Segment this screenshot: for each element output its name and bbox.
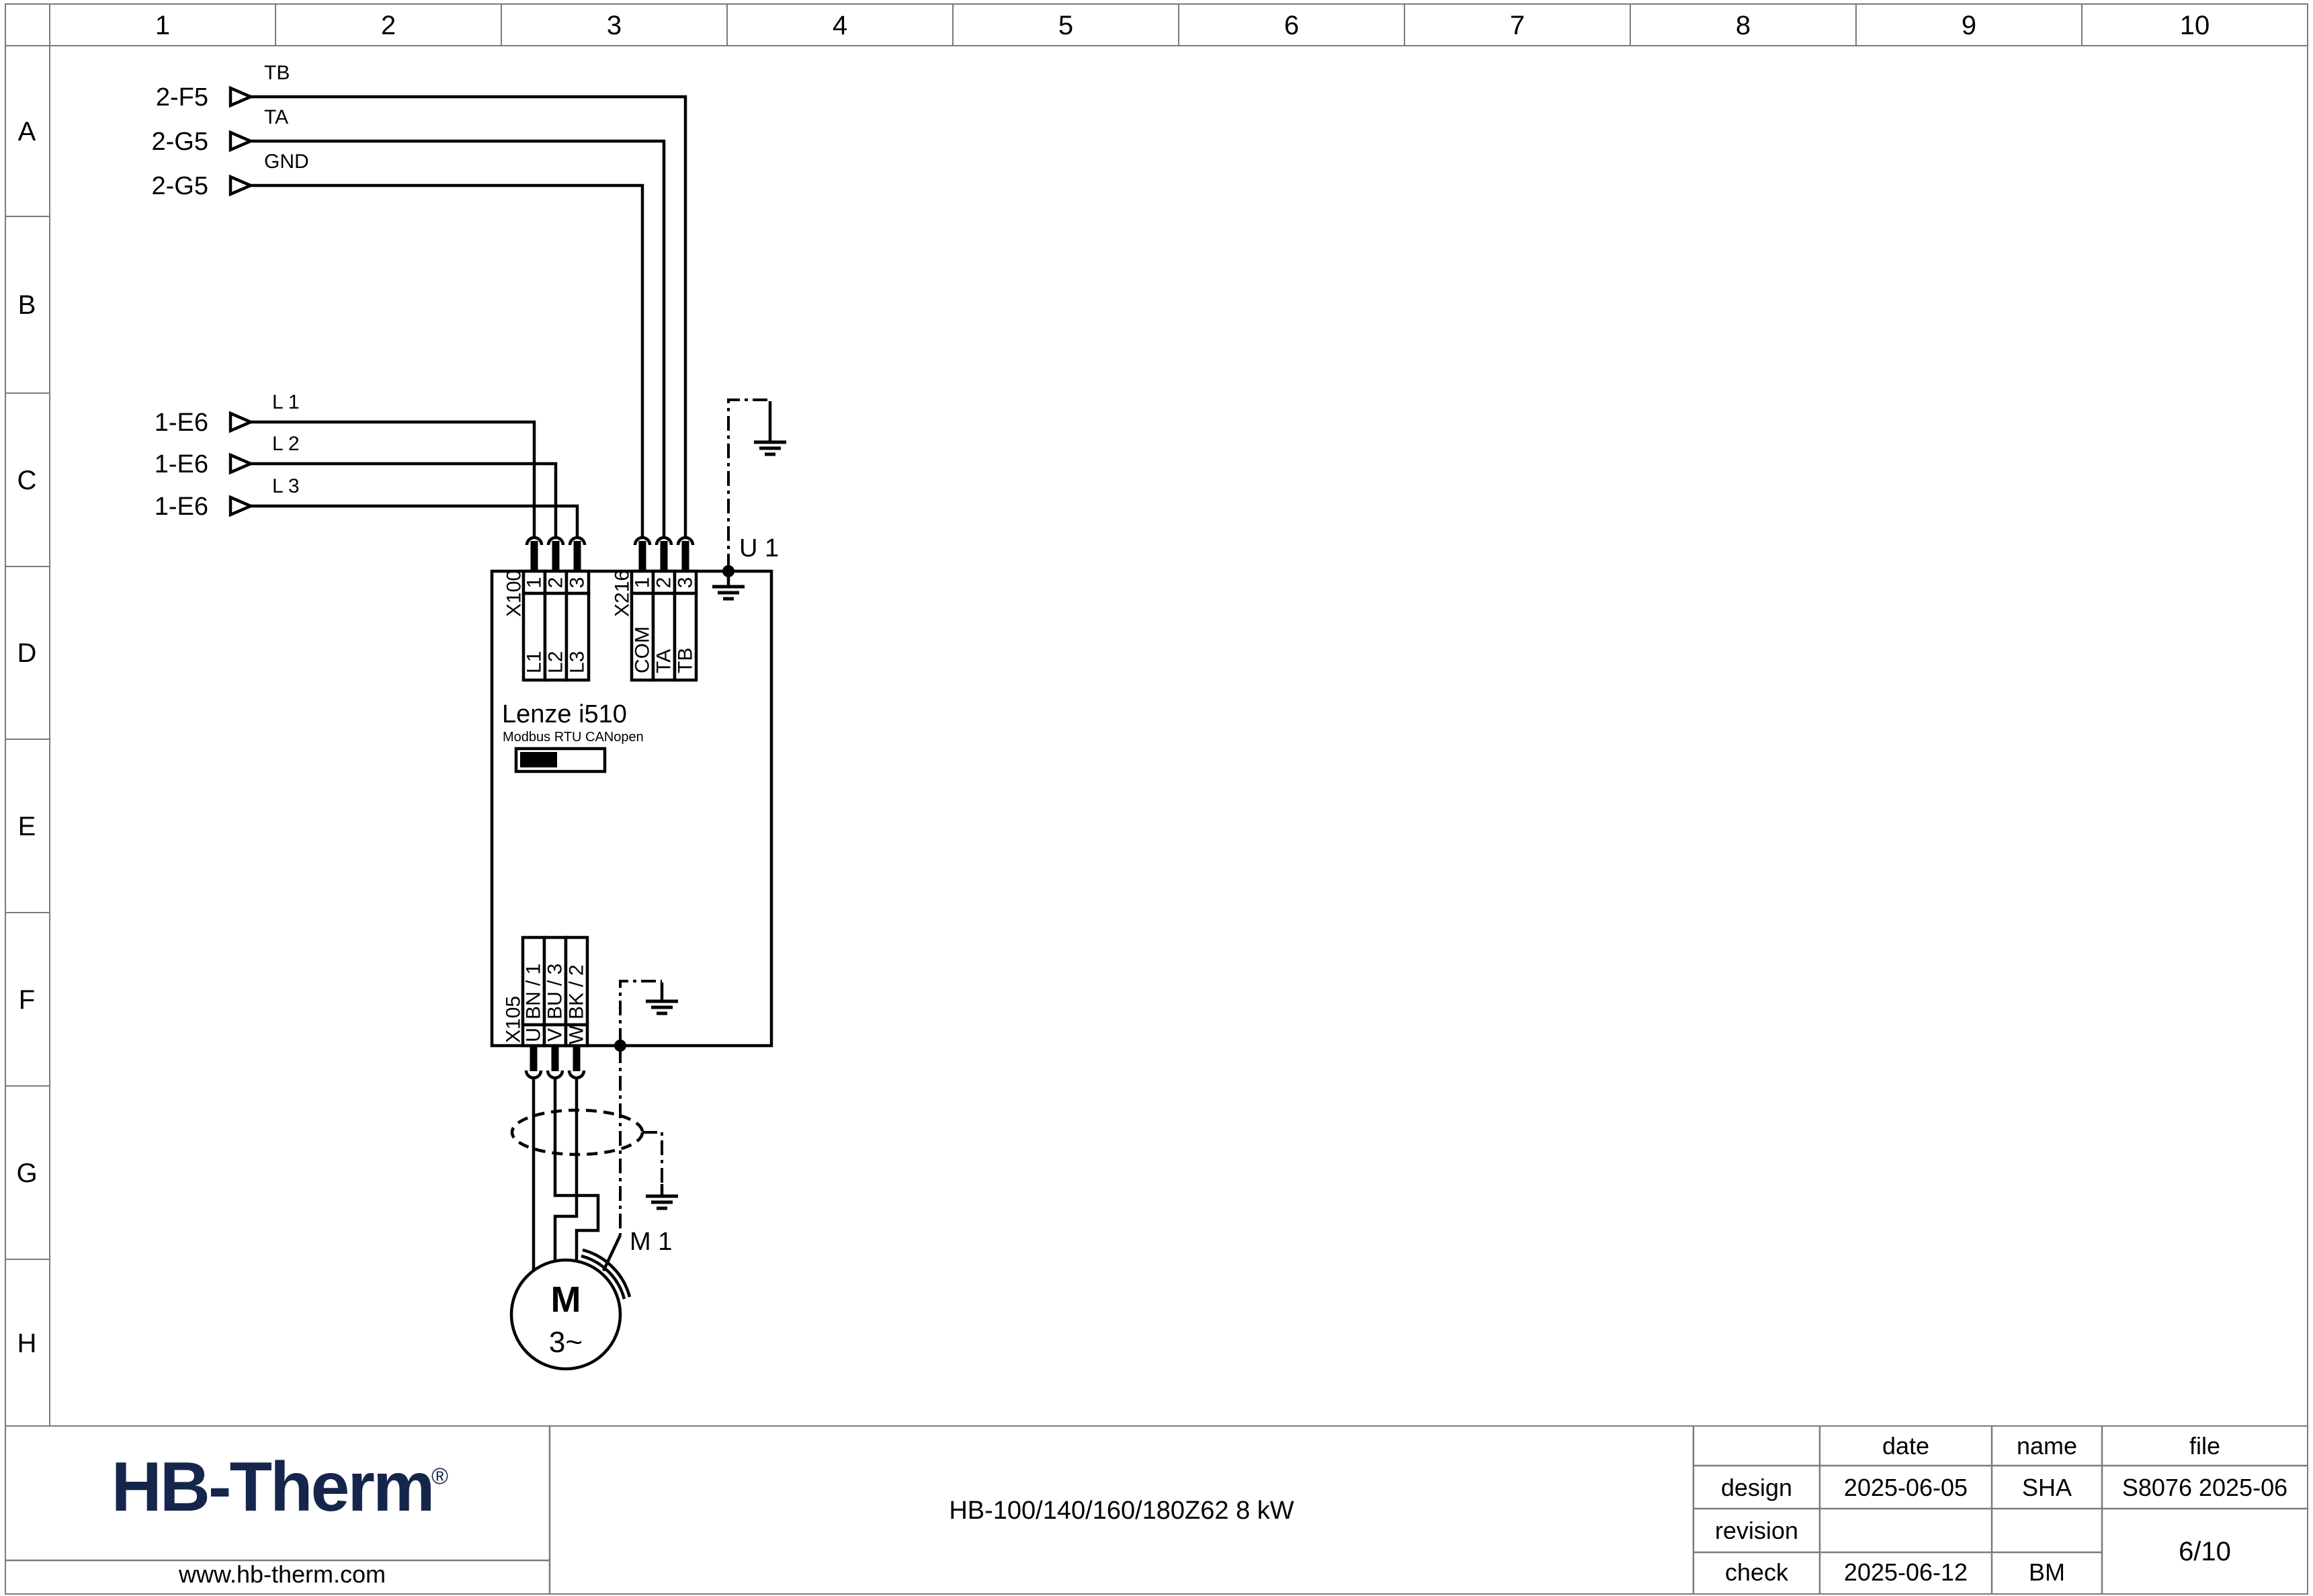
signal-references: 2-F5 TB 2-G5 TA 2-G5 GND 1-E6 L 1 1-E6 L… <box>152 62 685 538</box>
wire-ta <box>251 141 664 538</box>
column-label: 5 <box>1058 11 1073 40</box>
wire-label: L 1 <box>272 391 300 413</box>
terminal-label: L1 <box>523 651 546 673</box>
wire-label: L 2 <box>272 433 300 455</box>
drive-designator: U 1 <box>739 534 779 562</box>
row-label-check: check <box>1725 1558 1789 1586</box>
signal-source-ref: 1-E6 <box>155 493 208 521</box>
wire-l3 <box>251 506 577 538</box>
dip-switch-icon <box>516 749 605 771</box>
terminal-label: L2 <box>545 651 567 673</box>
column-label: 2 <box>381 11 396 40</box>
check-name: BM <box>2029 1558 2065 1586</box>
column-label: 9 <box>1962 11 1976 40</box>
column-label: 6 <box>1284 11 1299 40</box>
page-border <box>5 4 2308 1594</box>
logo-text: HB-Therm <box>112 1448 433 1526</box>
terminal-label: TA <box>653 649 675 673</box>
wire-label: TB <box>264 62 290 84</box>
signal-source-ref: 2-G5 <box>152 128 208 156</box>
signal-source-ref: 1-E6 <box>155 450 208 478</box>
column-header-date: date <box>1882 1432 1929 1460</box>
registered-trademark-icon: ® <box>431 1464 448 1489</box>
drive-device: X100 1 2 3 L1 L2 L3 X216 1 2 3 COM TA TB… <box>492 400 786 1046</box>
terminal-strip-name: X100 <box>503 570 525 617</box>
output-terminal-pins <box>526 1046 584 1078</box>
terminal-pin-number: 2 <box>545 577 567 589</box>
terminal-pin-number: 1 <box>632 577 654 589</box>
left-ruler-ticks <box>5 216 50 1259</box>
signal-source-ref: 2-F5 <box>156 83 208 112</box>
column-label: 4 <box>833 11 847 40</box>
terminal-pin-number: V <box>544 1028 566 1042</box>
column-header-file: file <box>2189 1432 2220 1460</box>
terminal-pin-icon <box>657 538 671 571</box>
page-frame: 1 2 3 4 5 6 7 8 9 10 A B C D E F G H <box>5 4 2308 1594</box>
motor-wire-w <box>555 1078 577 1262</box>
motor-symbol-letter: M <box>551 1279 581 1320</box>
earth-ground-icon <box>646 1196 678 1208</box>
design-file: S8076 2025-06 <box>2122 1474 2287 1501</box>
terminal-strip-name: X216 <box>612 570 634 617</box>
page-number: 6/10 <box>2179 1537 2231 1566</box>
reference-arrow-icon <box>230 497 251 515</box>
terminal-pin-icon <box>526 1046 541 1078</box>
terminal-pin-number: 3 <box>675 577 697 589</box>
reference-arrow-icon <box>230 455 251 472</box>
terminal-pin-number: 1 <box>523 577 546 589</box>
schematic-canvas: 1 2 3 4 5 6 7 8 9 10 A B C D E F G H 2-F… <box>0 0 2313 1596</box>
terminal-pin-number: W <box>566 1025 588 1044</box>
column-label: 8 <box>1736 11 1751 40</box>
terminal-strip-name: X105 <box>503 996 525 1043</box>
drive-fieldbus: Modbus RTU CANopen <box>503 730 644 745</box>
motor-designator: M 1 <box>630 1228 672 1256</box>
terminal-pin-icon <box>569 1046 584 1078</box>
terminal-label: TB <box>675 648 697 673</box>
reference-arrow-icon <box>230 413 251 431</box>
terminal-label: COM <box>632 626 654 673</box>
terminal-pin-icon <box>548 538 563 571</box>
reference-arrow-icon <box>230 132 251 150</box>
wire-label: TA <box>264 106 288 128</box>
input-terminal-pins <box>527 538 693 571</box>
column-label: 7 <box>1510 11 1525 40</box>
drawing-title: HB-100/140/160/180Z62 8 kW <box>949 1497 1294 1525</box>
column-header-name: name <box>2017 1432 2077 1460</box>
terminal-pin-number: 2 <box>653 577 675 589</box>
drive-model: Lenze i510 <box>502 700 627 728</box>
motor-phase-label: 3~ <box>549 1326 583 1359</box>
top-ruler-labels: 1 2 3 4 5 6 7 8 9 10 <box>155 11 2210 40</box>
row-label-design: design <box>1721 1474 1792 1501</box>
row-label: F <box>19 985 35 1015</box>
row-label: B <box>18 290 36 320</box>
title-block: HB-Therm ® www.hb-therm.com HB-100/140/1… <box>5 1426 2308 1594</box>
terminal-pin-icon <box>570 538 585 571</box>
terminal-label: L3 <box>566 651 589 673</box>
wire-tb <box>251 97 685 538</box>
wire-gnd <box>251 185 642 538</box>
terminal-pin-number: 3 <box>566 577 589 589</box>
design-date: 2025-06-05 <box>1844 1474 1968 1501</box>
row-label: D <box>17 638 37 668</box>
row-label: A <box>18 117 36 146</box>
terminal-pin-icon <box>548 1046 562 1078</box>
terminal-pin-icon <box>527 538 542 571</box>
terminal-pin-icon <box>635 538 650 571</box>
terminal-pin-number: U <box>523 1027 545 1042</box>
row-label: E <box>18 812 36 841</box>
pe-line-shield <box>642 1132 662 1188</box>
check-date: 2025-06-12 <box>1844 1558 1968 1586</box>
terminal-label: BU / 3 <box>544 964 566 1019</box>
row-label: H <box>17 1329 37 1358</box>
earth-ground-icon <box>754 442 786 454</box>
top-ruler-ticks <box>276 4 2082 46</box>
signal-source-ref: 2-G5 <box>152 172 208 200</box>
company-logo: HB-Therm ® <box>112 1448 448 1526</box>
design-name: SHA <box>2022 1474 2072 1501</box>
terminal-label: BN / 1 <box>523 964 545 1019</box>
terminal-label: BK / 2 <box>566 964 588 1019</box>
motor: M 3~ M 1 <box>511 1228 672 1369</box>
column-label: 10 <box>2180 11 2210 40</box>
row-label: G <box>16 1159 37 1188</box>
reference-arrow-icon <box>230 177 251 194</box>
row-label: C <box>17 466 37 495</box>
signal-source-ref: 1-E6 <box>155 409 208 437</box>
column-label: 3 <box>607 11 622 40</box>
terminal-pin-icon <box>678 538 693 571</box>
wire-label: L 3 <box>272 475 300 497</box>
column-label: 1 <box>155 11 170 40</box>
left-ruler-labels: A B C D E F G H <box>16 117 37 1358</box>
reference-arrow-icon <box>230 88 251 106</box>
wire-label: GND <box>264 151 309 173</box>
row-label-revision: revision <box>1715 1517 1798 1544</box>
schematic-page: 1 2 3 4 5 6 7 8 9 10 A B C D E F G H 2-F… <box>0 0 2313 1596</box>
company-website: www.hb-therm.com <box>178 1560 386 1588</box>
